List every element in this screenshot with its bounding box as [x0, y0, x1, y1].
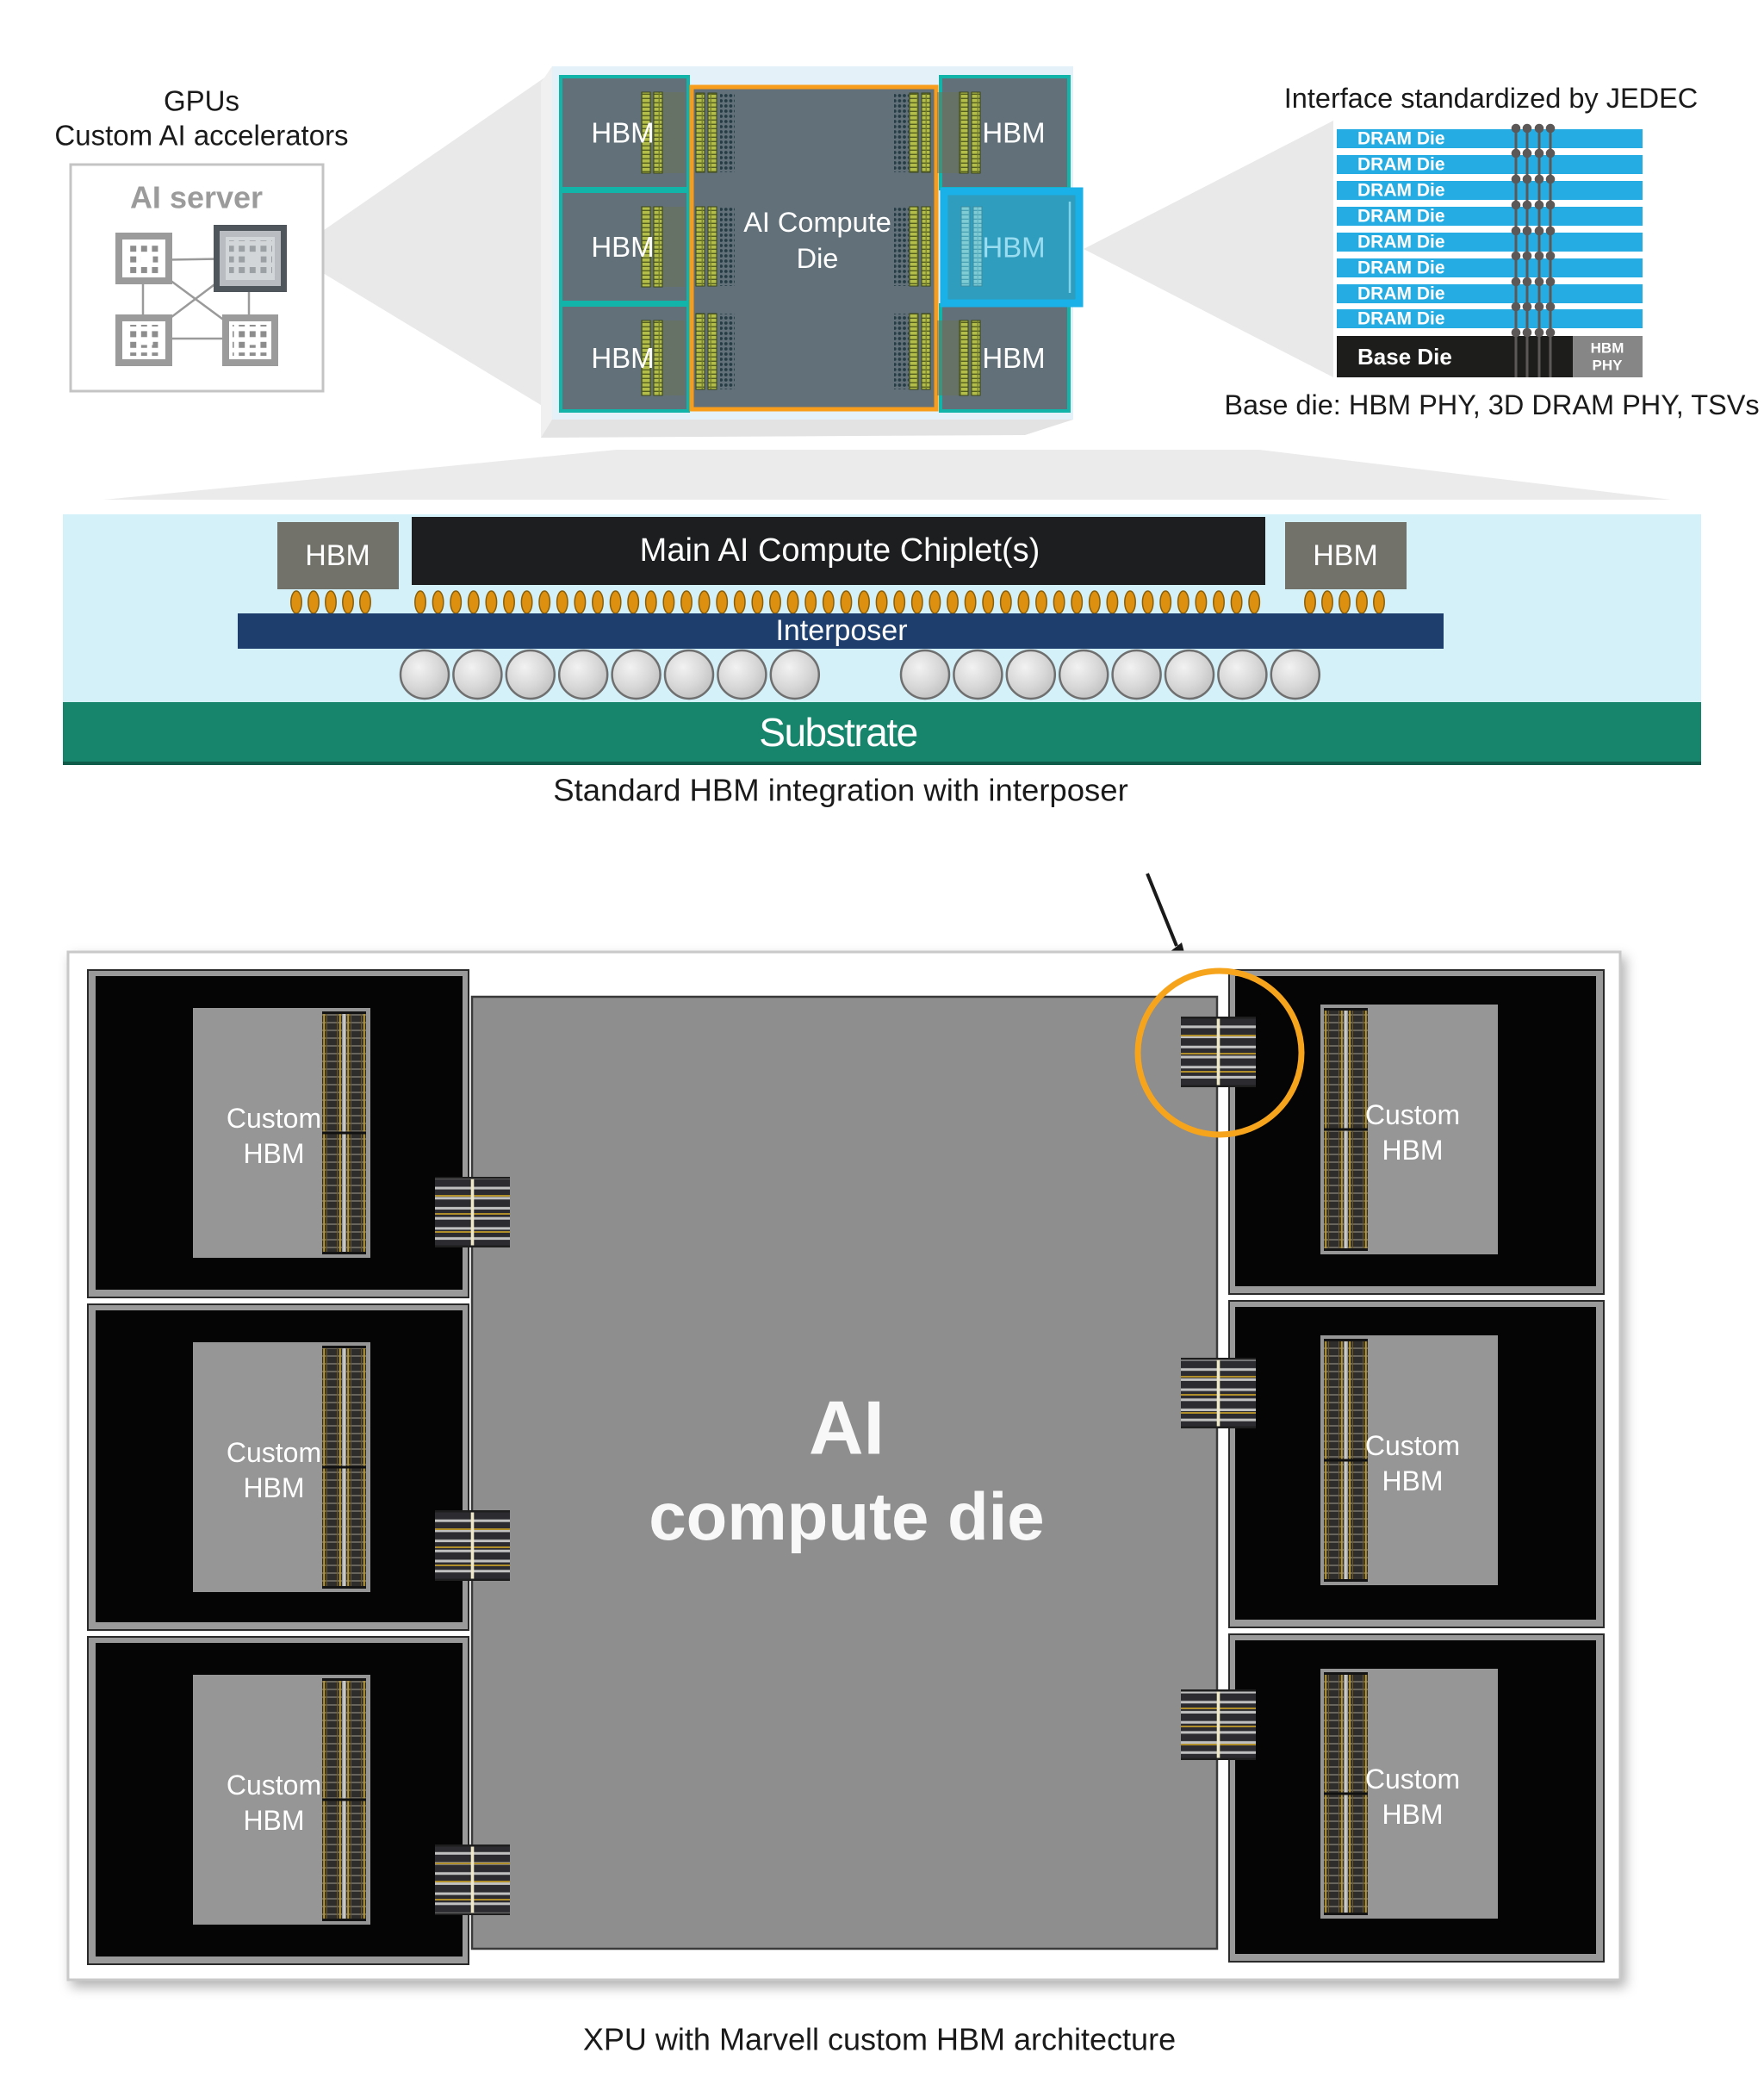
svg-text:Custom: Custom — [227, 1770, 321, 1801]
svg-text:Base Die: Base Die — [1357, 344, 1452, 370]
svg-text:Custom: Custom — [1365, 1099, 1460, 1130]
svg-text:Custom: Custom — [1365, 1430, 1460, 1461]
svg-text:HBM: HBM — [1382, 1465, 1443, 1496]
svg-text:Die: Die — [797, 243, 839, 274]
svg-text:HBM: HBM — [1382, 1799, 1443, 1830]
svg-text:HBM: HBM — [1591, 340, 1624, 357]
svg-text:DRAM Die: DRAM Die — [1357, 258, 1445, 278]
svg-text:HBM: HBM — [243, 1138, 304, 1169]
svg-text:Interface standardized by JEDE: Interface standardized by JEDEC — [1284, 83, 1699, 114]
svg-text:DRAM Die: DRAM Die — [1357, 129, 1445, 149]
svg-text:HBM: HBM — [1313, 539, 1378, 572]
svg-text:DRAM Die: DRAM Die — [1357, 207, 1445, 227]
svg-text:HBM: HBM — [591, 231, 654, 263]
svg-text:HBM: HBM — [243, 1805, 304, 1836]
svg-text:DRAM Die: DRAM Die — [1357, 284, 1445, 304]
svg-text:GPUs: GPUs — [164, 85, 239, 117]
svg-text:PHY: PHY — [1593, 358, 1624, 374]
svg-text:Custom AI accelerators: Custom AI accelerators — [54, 120, 348, 152]
svg-text:Base die: HBM PHY, 3D DRAM PHY: Base die: HBM PHY, 3D DRAM PHY, TSVs — [1224, 389, 1759, 420]
svg-text:DRAM Die: DRAM Die — [1357, 233, 1445, 252]
svg-text:HBM: HBM — [591, 117, 654, 149]
svg-text:Substrate: Substrate — [759, 710, 916, 755]
svg-text:Interposer: Interposer — [775, 614, 907, 647]
svg-text:Custom: Custom — [227, 1437, 321, 1468]
svg-text:Standard HBM integration with: Standard HBM integration with interposer — [553, 773, 1127, 808]
svg-text:Custom: Custom — [1365, 1764, 1460, 1795]
svg-text:XPU with Marvell custom HBM ar: XPU with Marvell custom HBM architecture — [583, 2022, 1176, 2057]
svg-text:DRAM Die: DRAM Die — [1357, 181, 1445, 201]
svg-text:HBM: HBM — [591, 342, 654, 374]
svg-text:HBM: HBM — [982, 342, 1045, 374]
svg-text:Custom: Custom — [227, 1103, 321, 1134]
svg-text:HBM: HBM — [982, 117, 1045, 149]
svg-text:DRAM Die: DRAM Die — [1357, 309, 1445, 329]
svg-text:AI Compute: AI Compute — [743, 207, 891, 238]
svg-text:AI: AI — [809, 1385, 885, 1471]
svg-text:HBM: HBM — [1382, 1135, 1443, 1166]
svg-text:compute die: compute die — [649, 1478, 1044, 1554]
svg-text:AI server: AI server — [130, 180, 263, 215]
svg-text:DRAM Die: DRAM Die — [1357, 155, 1445, 175]
svg-text:HBM: HBM — [243, 1472, 304, 1503]
svg-text:Main AI Compute Chiplet(s): Main AI Compute Chiplet(s) — [640, 532, 1040, 569]
svg-text:HBM: HBM — [305, 539, 370, 572]
svg-text:HBM: HBM — [982, 232, 1045, 264]
